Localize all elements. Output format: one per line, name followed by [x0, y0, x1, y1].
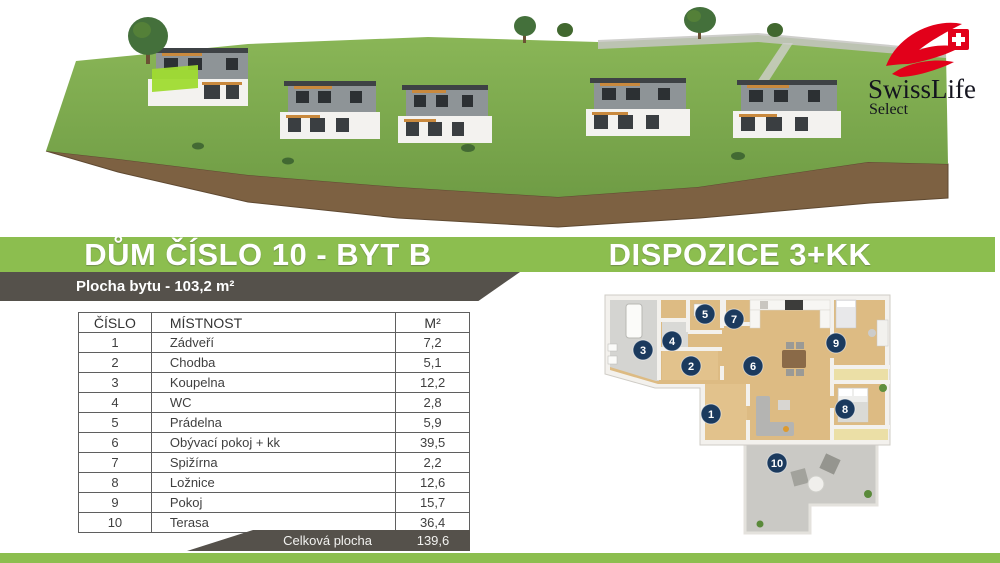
- room-table: ČÍSLO MÍSTNOST M² 1Zádveří7,22Chodba5,13…: [78, 312, 470, 533]
- room-area: 7,2: [396, 333, 470, 353]
- total-bar: Celková plocha 139,6: [187, 530, 470, 551]
- room-number: 5: [79, 413, 152, 433]
- room-name: WC: [151, 393, 395, 413]
- table-row: 10Terasa36,4: [79, 513, 470, 533]
- highlighted-unit: [152, 65, 198, 92]
- house-1: [148, 48, 248, 106]
- room-number: 7: [79, 453, 152, 473]
- title-banner: DŮM ČÍSLO 10 - BYT B DISPOZICE 3+KK: [0, 237, 995, 272]
- room-name: Ložnice: [151, 473, 395, 493]
- room-area: 12,6: [396, 473, 470, 493]
- page-title-left: DŮM ČÍSLO 10 - BYT B: [0, 237, 516, 272]
- table-row: 7Spižírna2,2: [79, 453, 470, 473]
- table-row: 5Prádelna5,9: [79, 413, 470, 433]
- house-5: [733, 80, 841, 138]
- page-title-right: DISPOZICE 3+KK: [560, 237, 920, 272]
- room-badge-number: 8: [842, 404, 848, 416]
- room-number: 8: [79, 473, 152, 493]
- swisslife-bird-icon: [886, 23, 969, 77]
- room-badge-number: 6: [750, 361, 756, 373]
- room-name: Prádelna: [151, 413, 395, 433]
- house-2: [280, 81, 380, 139]
- house-3: [398, 85, 492, 143]
- col-header-area: M²: [396, 313, 470, 333]
- table-header-row: ČÍSLO MÍSTNOST M²: [79, 313, 470, 333]
- room-badge-number: 5: [702, 309, 708, 321]
- room-area: 2,2: [396, 453, 470, 473]
- sill-strip-top: [834, 368, 888, 381]
- room-number: 9: [79, 493, 152, 513]
- room-number: 3: [79, 373, 152, 393]
- room-name: Obývací pokoj + kk: [151, 433, 395, 453]
- total-label: Celková plocha: [187, 533, 396, 548]
- logo-brand-text: SwissLife: [868, 74, 976, 104]
- table-row: 4WC2,8: [79, 393, 470, 413]
- table-row: 1Zádveří7,2: [79, 333, 470, 353]
- room-area: 12,2: [396, 373, 470, 393]
- table-row: 9Pokoj15,7: [79, 493, 470, 513]
- room-badge-number: 1: [708, 409, 714, 421]
- swisslife-logo: SwissLife Select: [856, 14, 996, 116]
- room-name: Koupelna: [151, 373, 395, 393]
- room-number: 1: [79, 333, 152, 353]
- room-name: Pokoj: [151, 493, 395, 513]
- site-render: [38, 6, 958, 232]
- sill-strip-bottom: [834, 428, 888, 440]
- table-row: 8Ložnice12,6: [79, 473, 470, 493]
- col-header-room: MÍSTNOST: [151, 313, 395, 333]
- floor-plan: 12345678910: [600, 288, 900, 553]
- subtitle-bar: Plocha bytu - 103,2 m²: [0, 272, 520, 301]
- room-area: 15,7: [396, 493, 470, 513]
- table-row: 6Obývací pokoj + kk39,5: [79, 433, 470, 453]
- logo-sub-text: Select: [869, 101, 909, 116]
- room-name: Zádveří: [151, 333, 395, 353]
- room-area: 5,1: [396, 353, 470, 373]
- room-badge-number: 9: [833, 338, 839, 350]
- room-number: 10: [79, 513, 152, 533]
- house-4: [586, 78, 690, 136]
- apartment-area-text: Plocha bytu - 103,2 m²: [0, 278, 234, 295]
- room-name: Chodba: [151, 353, 395, 373]
- brochure-page: SwissLife Select DŮM ČÍSLO 10 - BYT B DI…: [0, 0, 1000, 563]
- room-badge-number: 3: [640, 345, 646, 357]
- table-row: 2Chodba5,1: [79, 353, 470, 373]
- room-name: Spižírna: [151, 453, 395, 473]
- room-area: 36,4: [396, 513, 470, 533]
- bottom-accent-strip: [0, 553, 1000, 563]
- room-number: 2: [79, 353, 152, 373]
- room-name: Terasa: [151, 513, 395, 533]
- room-badge-number: 7: [731, 314, 737, 326]
- room-badge-number: 4: [669, 336, 676, 348]
- room-badge-number: 10: [771, 458, 783, 470]
- table-row: 3Koupelna12,2: [79, 373, 470, 393]
- room-number: 4: [79, 393, 152, 413]
- room-area: 39,5: [396, 433, 470, 453]
- room-number: 6: [79, 433, 152, 453]
- room-area: 5,9: [396, 413, 470, 433]
- total-value: 139,6: [396, 533, 470, 548]
- room-area: 2,8: [396, 393, 470, 413]
- room-badge-number: 2: [688, 361, 694, 373]
- col-header-number: ČÍSLO: [79, 313, 152, 333]
